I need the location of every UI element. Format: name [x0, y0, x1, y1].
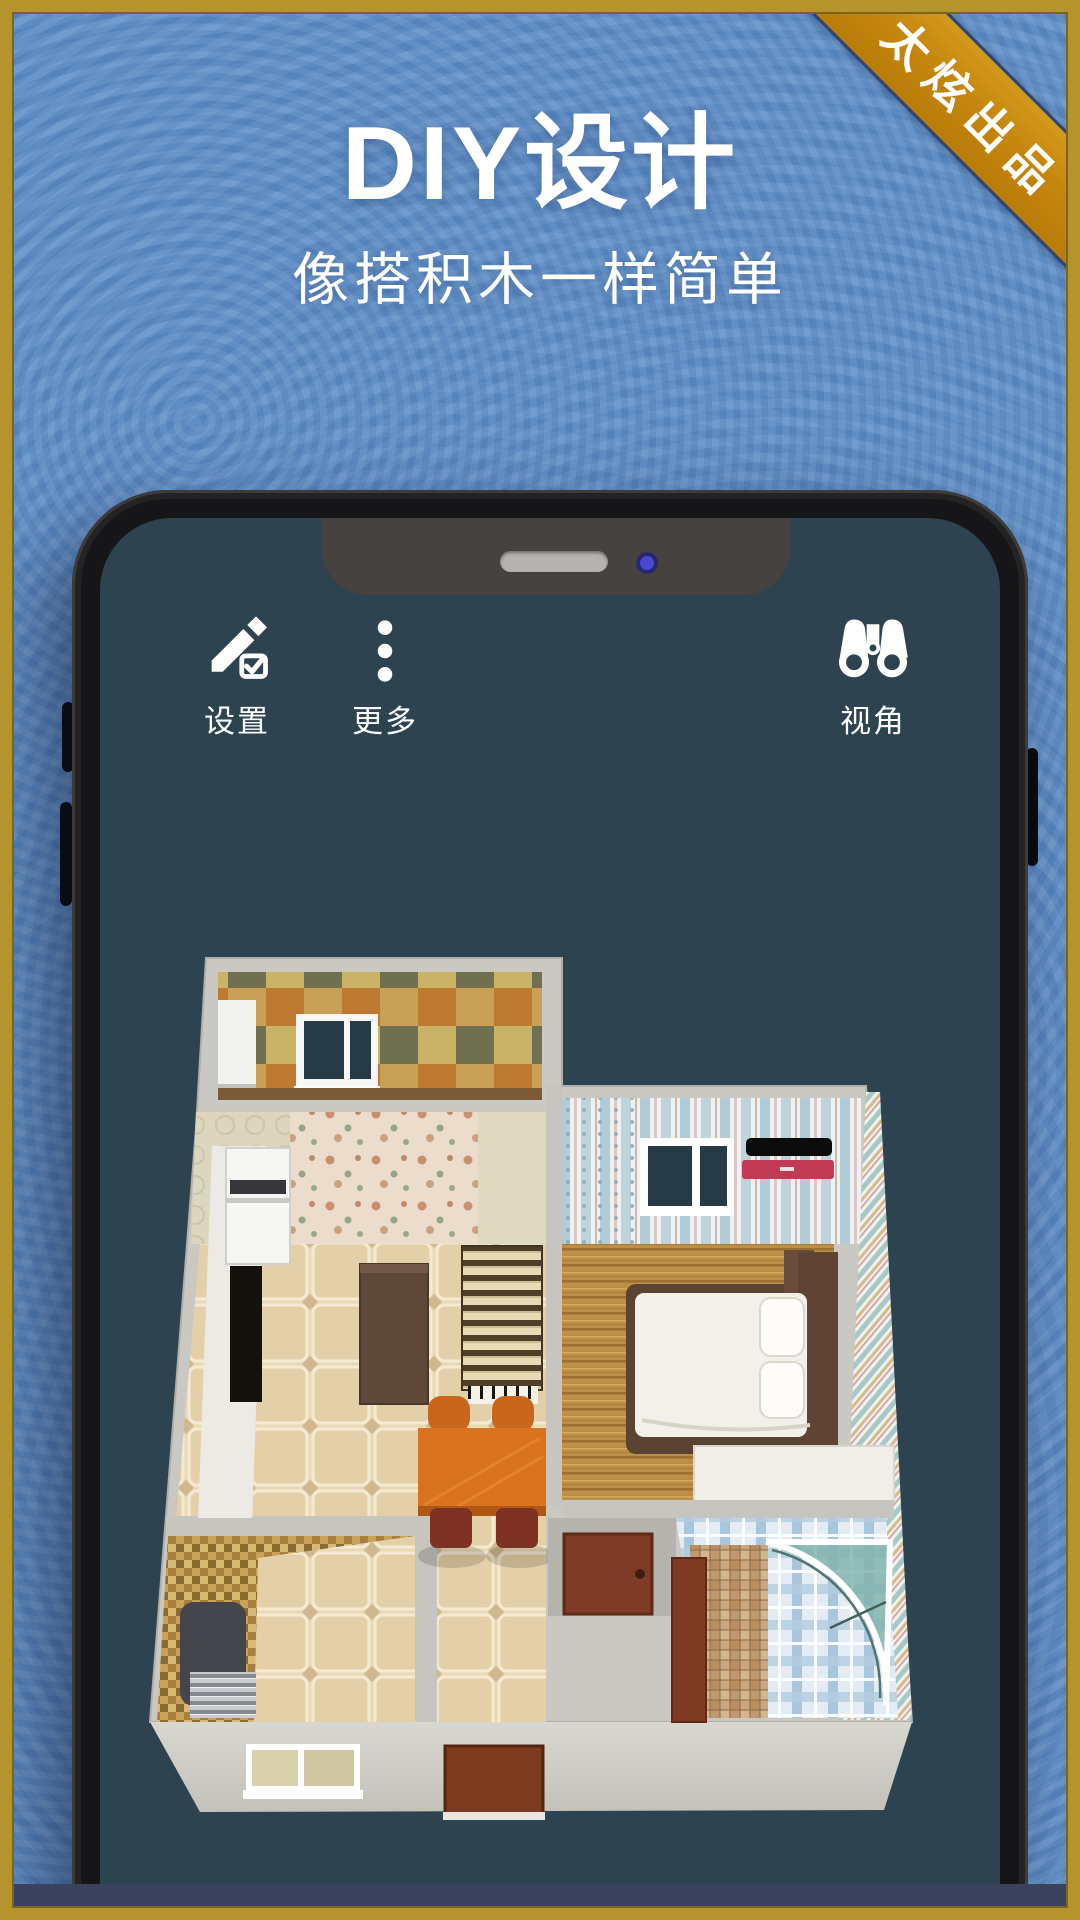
phone-screen: 设置 更多 — [100, 518, 1000, 1920]
more-dots-icon — [320, 606, 450, 686]
view-angle-label: 视角 — [808, 696, 938, 741]
dining-chair — [492, 1396, 534, 1432]
kitchen-room[interactable] — [218, 972, 542, 1100]
app-store-screenshot: DIY设计 像搭积木一样简单 太炫出品 — [0, 0, 1080, 1920]
bottom-shadow-band — [0, 1884, 1080, 1912]
divider-wall — [546, 1086, 562, 1506]
fridge — [226, 1148, 290, 1264]
kitchen-counter — [218, 1088, 542, 1100]
view-angle-button[interactable]: 视角 — [808, 606, 938, 741]
more-button[interactable]: 更多 — [320, 606, 450, 741]
floral-wallpaper — [290, 1112, 478, 1244]
page-subtitle: 像搭积木一样简单 — [0, 234, 1080, 316]
settings-button[interactable]: 设置 — [172, 606, 302, 741]
front-door — [445, 1746, 543, 1814]
bathroom-door-panel — [672, 1558, 706, 1722]
dining-chair — [430, 1508, 472, 1548]
kitchen-tile-wall — [218, 972, 542, 1090]
foot-dresser — [694, 1446, 894, 1502]
pencil-edit-icon — [172, 606, 302, 686]
front-wall — [150, 1722, 912, 1820]
settings-label: 设置 — [172, 696, 302, 741]
air-conditioner — [746, 1138, 832, 1156]
tv-screen — [230, 1266, 262, 1402]
dining-chair — [428, 1396, 470, 1432]
phone-volume-button — [60, 802, 72, 906]
front-camera — [636, 552, 658, 574]
striped-shelf — [462, 1246, 542, 1390]
dining-chair — [496, 1508, 538, 1548]
study-room[interactable] — [157, 1516, 437, 1722]
pillow — [760, 1298, 804, 1356]
heater — [190, 1672, 256, 1718]
app-toolbar: 设置 更多 — [100, 606, 1000, 756]
kitchen-cabinet — [218, 1000, 256, 1090]
phone-notch — [322, 518, 790, 595]
speaker-grille — [500, 551, 608, 572]
wood-cabinet — [360, 1264, 428, 1404]
phone-mockup: 设置 更多 — [72, 490, 1028, 1920]
binoculars-icon — [808, 606, 938, 686]
pillow — [760, 1362, 804, 1418]
more-label: 更多 — [320, 696, 450, 741]
